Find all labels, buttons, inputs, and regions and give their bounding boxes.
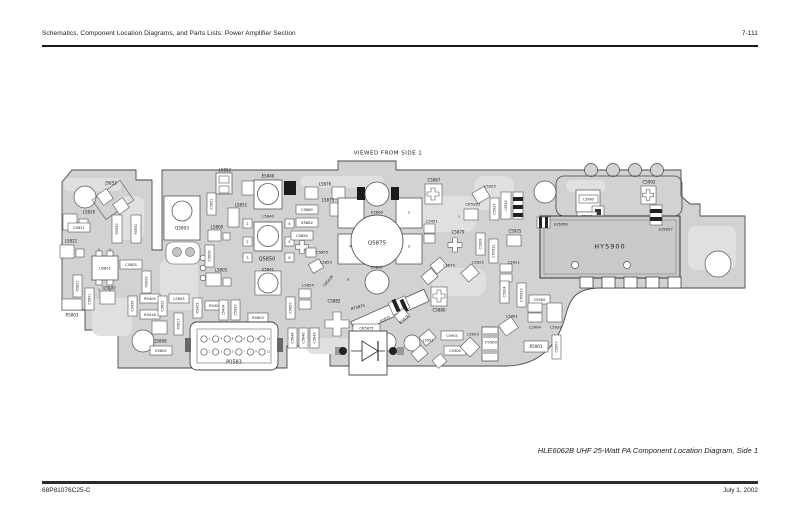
- pcb-text: 5: [232, 349, 234, 353]
- pcb-rect: [545, 217, 548, 228]
- pcb-rect: [166, 242, 200, 264]
- label-Q5806: Q5806: [153, 338, 167, 343]
- pin-2: 2: [246, 240, 248, 244]
- module-pin: [624, 277, 637, 288]
- label-L5879: L5879: [443, 262, 455, 267]
- pcb-text: 12: [267, 336, 271, 340]
- module-terminal: [629, 164, 642, 177]
- pcb-rect: [424, 224, 435, 233]
- label-C5846: C5846: [302, 333, 306, 344]
- mounting-hole: [534, 181, 556, 203]
- label-CR5875: CR5875: [359, 326, 373, 330]
- label-C5925: C5925: [509, 228, 522, 233]
- label-L5925: L5925: [484, 183, 496, 188]
- pcb-text: 6: [232, 336, 234, 340]
- pcb-rect: [500, 264, 512, 272]
- pcb-circle: [258, 226, 279, 247]
- pcb-circle: [200, 275, 206, 281]
- mounting-hole: [705, 251, 731, 277]
- pcb-rect: [391, 187, 399, 200]
- label-E5840: E5840: [262, 173, 275, 178]
- page-footer: 68P81076C25-C July 1, 2002: [42, 487, 758, 494]
- module-pin: [668, 277, 681, 288]
- pcb-rect: [223, 278, 231, 286]
- label-C5808: C5808: [208, 251, 212, 262]
- label-E5861: E5861: [371, 264, 384, 269]
- connector-pin: [259, 336, 265, 342]
- module-terminal: [651, 164, 664, 177]
- label-R5803: R5803: [66, 312, 79, 317]
- label-L5853: L5853: [320, 259, 332, 264]
- label-L5922: L5922: [472, 259, 484, 264]
- pcb-rect: [96, 251, 102, 256]
- label-C5802: C5802: [161, 301, 165, 312]
- pcb-rect: [528, 303, 542, 312]
- pcb-text: 5: [98, 247, 100, 251]
- connector-pin: [212, 349, 218, 355]
- pcb-rect: [242, 181, 254, 195]
- pcb-rect: [219, 186, 229, 193]
- label-E5605: E5605: [155, 349, 166, 353]
- label-Q5803: Q5803: [175, 225, 189, 230]
- pcb-rect: [650, 209, 662, 213]
- label-P0583: P0583: [226, 359, 242, 365]
- pcb-circle: [172, 201, 192, 221]
- label-L5875: L5875: [322, 197, 335, 202]
- label-E5860: E5860: [371, 209, 384, 214]
- label-L5451: L5451: [426, 218, 438, 223]
- label-C5821: C5821: [73, 226, 85, 230]
- connector-pin: [224, 349, 230, 355]
- label-C5850: C5850: [289, 303, 293, 314]
- label-J5853: J5853: [104, 180, 117, 185]
- pcb-text: 3: [220, 349, 222, 353]
- pcb-rect: [185, 338, 191, 352]
- label-R5609: R5609: [145, 277, 149, 288]
- pcb-rect: [482, 349, 498, 354]
- pcb-text: 3: [458, 214, 460, 218]
- connector-pin: [259, 349, 265, 355]
- label-HY5900: HY5900: [594, 242, 625, 250]
- label-R5801: R5801: [76, 281, 80, 292]
- pcb-rect: [424, 234, 435, 243]
- footer-rule: [42, 481, 758, 484]
- pcb-text: 4: [109, 247, 111, 251]
- label-R5803-2: R5803: [252, 316, 264, 320]
- pcb-rect: [513, 205, 523, 209]
- connector-pin: [201, 349, 207, 355]
- pcb-rect: [397, 347, 404, 355]
- label-C5924: C5924: [503, 287, 507, 298]
- label-R5405: R5405: [144, 297, 156, 301]
- pcb-circle: [258, 184, 279, 205]
- pcb-rect: [62, 299, 82, 310]
- connector-pin: [212, 336, 218, 342]
- label-C5900: C5900: [555, 342, 559, 353]
- label-C5851: C5851: [210, 199, 214, 210]
- mounting-hole: [74, 186, 96, 208]
- pcb-circle: [572, 262, 579, 269]
- label-L5820: L5820: [83, 209, 96, 214]
- pcb-rect: [206, 273, 221, 286]
- label-C5805: C5805: [125, 263, 137, 267]
- label-R5882: R5882: [301, 221, 313, 225]
- connector-pin: [247, 336, 253, 342]
- pcb-circle: [339, 347, 347, 355]
- label-R5402: R5402: [196, 303, 200, 314]
- pcb-rect: [76, 249, 84, 257]
- pcb-text: 9: [255, 349, 257, 353]
- pin-3: 3: [246, 256, 248, 260]
- label-JU5856: JU5856: [553, 221, 568, 226]
- label-C5855: C5855: [316, 249, 329, 254]
- pcb-rect: [650, 205, 662, 225]
- pcb-rect: [539, 217, 542, 228]
- module-terminal: [607, 164, 620, 177]
- label-L5854: L5854: [302, 282, 314, 287]
- label-C5867: C5867: [428, 177, 441, 182]
- label-L5821: L5821: [65, 238, 78, 243]
- pcb-rect: [464, 209, 478, 220]
- pcb-rect: [482, 333, 498, 338]
- label-R5817: R5817: [177, 319, 181, 330]
- pcb-text: 4: [220, 336, 222, 340]
- label-C5844: C5844: [291, 333, 295, 344]
- connector-pin: [236, 336, 242, 342]
- pcb-circle: [258, 273, 278, 293]
- pcb-circle: [186, 248, 195, 257]
- label-C5928: C5928: [479, 239, 483, 250]
- label-C5882: C5882: [328, 298, 341, 303]
- pin-5: 5: [288, 240, 290, 244]
- label-C5879: C5879: [452, 229, 465, 234]
- pcb-rect: [60, 245, 74, 258]
- pcb-rect: [650, 217, 662, 221]
- pcb-rect: [357, 187, 365, 200]
- pcb-rect: [513, 213, 523, 217]
- pcb-rect: [96, 280, 102, 285]
- label-R5418: R5418: [144, 313, 156, 317]
- pcb-text: 8: [243, 336, 245, 340]
- label-C5860: C5860: [301, 208, 313, 212]
- module-pin: [646, 277, 659, 288]
- label-C5903: C5903: [446, 334, 458, 338]
- label-Q5875: Q5875: [368, 240, 387, 246]
- pcb-circle: [624, 262, 631, 269]
- label-R5930: R5930: [115, 224, 119, 235]
- pin-6: 6: [288, 256, 290, 260]
- pcb-text: 7: [243, 349, 245, 353]
- pin-4: 4: [288, 222, 290, 226]
- label-C5801: C5801: [88, 294, 92, 305]
- pcb-rect: [537, 217, 550, 228]
- pcb-rect: [277, 338, 283, 352]
- label-C5902: C5902: [643, 179, 656, 184]
- pcb-text: 1: [209, 349, 211, 353]
- label-L5805: L5805: [215, 267, 228, 272]
- label-R5901: R5901: [530, 344, 543, 349]
- label-L5960: L5960: [583, 197, 594, 201]
- label-Q5850: Q5850: [259, 256, 276, 262]
- label-CR5922: CR5922: [466, 201, 482, 206]
- label-L5921: L5921: [508, 259, 520, 264]
- pcb-rect: [507, 235, 521, 246]
- pcb-rect: [305, 187, 318, 199]
- label-L5952: L5952: [504, 200, 508, 211]
- pcb-rect: [528, 313, 542, 322]
- label-L5800: L5800: [211, 224, 224, 229]
- pcb-rect: [152, 321, 167, 334]
- label-C5904: C5904: [449, 349, 461, 353]
- connector-pin: [236, 349, 242, 355]
- module-terminal: [585, 164, 598, 177]
- label-L5852: L5852: [219, 167, 232, 172]
- pcb-circle: [365, 182, 389, 206]
- label-L5904: L5904: [529, 324, 541, 329]
- label-L5851: L5851: [235, 202, 248, 207]
- label-L5920: L5920: [550, 324, 562, 329]
- label-C5880: C5880: [433, 307, 446, 312]
- label-C5930: C5930: [234, 305, 238, 316]
- footer-date: July 1, 2002: [723, 487, 758, 494]
- label-L5903: L5903: [467, 331, 479, 336]
- label-L5901: L5901: [506, 313, 518, 318]
- pcb-text: 11: [267, 349, 271, 353]
- view-label: VIEWED FROM SIDE 1: [354, 150, 423, 156]
- label-C5843: C5843: [313, 333, 317, 344]
- module-pin: [602, 277, 615, 288]
- pcb-rect: [107, 251, 113, 256]
- label-U5801: U5801: [99, 266, 111, 270]
- pcb-rect: [513, 197, 523, 201]
- connector-pin: [224, 336, 230, 342]
- pcb-rect: [547, 303, 562, 322]
- pcb-text: 10: [255, 336, 259, 340]
- label-JU5857: JU5857: [658, 226, 673, 231]
- pcb-rect: [299, 300, 311, 309]
- pcb-rect: [223, 233, 230, 240]
- label-C5854: C5854: [296, 234, 308, 238]
- pcb-circle: [173, 248, 182, 257]
- pcb-circle: [365, 270, 389, 294]
- pcb-rect: [208, 230, 221, 241]
- diagram-caption: HLE6062B UHF 25-Watt PA Component Locati…: [538, 446, 758, 455]
- label-L5404: L5404: [222, 305, 226, 316]
- pcb-rect: [299, 289, 311, 298]
- label-R5931: R5931: [134, 224, 138, 235]
- connector-pin: [201, 336, 207, 342]
- footer-doc-number: 68P81076C25-C: [42, 487, 90, 494]
- module-pin: [580, 277, 593, 288]
- label-C5905: C5905: [534, 298, 546, 302]
- pcb-rect: [228, 208, 239, 227]
- label-CR5921: CR5921: [492, 244, 496, 257]
- pcb-rect: [219, 176, 229, 183]
- label-L5991: L5991: [423, 338, 434, 342]
- pcb-text: 2: [209, 336, 211, 340]
- label-C5435: C5435: [131, 301, 135, 312]
- label-L5876: L5876: [319, 181, 332, 186]
- pcb-rect: [100, 291, 115, 304]
- pcb-circle: [389, 347, 397, 355]
- label-C5927: C5927: [493, 204, 497, 215]
- label-L5603: L5603: [173, 297, 184, 301]
- label-L5840: L5840: [262, 213, 274, 218]
- pcb-diagram: J5853L5820C5821L5821R5930R5931Q58035412U…: [0, 0, 800, 518]
- label-Q5800: Q5800: [102, 285, 116, 290]
- pcb-rect: [306, 248, 316, 257]
- connector-pin: [247, 349, 253, 355]
- pcb-rect: [107, 280, 113, 285]
- pin-1: 1: [246, 222, 248, 226]
- label-CR5920: CR5920: [520, 288, 524, 301]
- pcb-rect: [284, 181, 296, 195]
- manual-page: Schematics, Component Location Diagrams,…: [0, 0, 800, 518]
- label-F5900: F5900: [485, 339, 497, 344]
- label-E5841: E5841: [262, 266, 275, 271]
